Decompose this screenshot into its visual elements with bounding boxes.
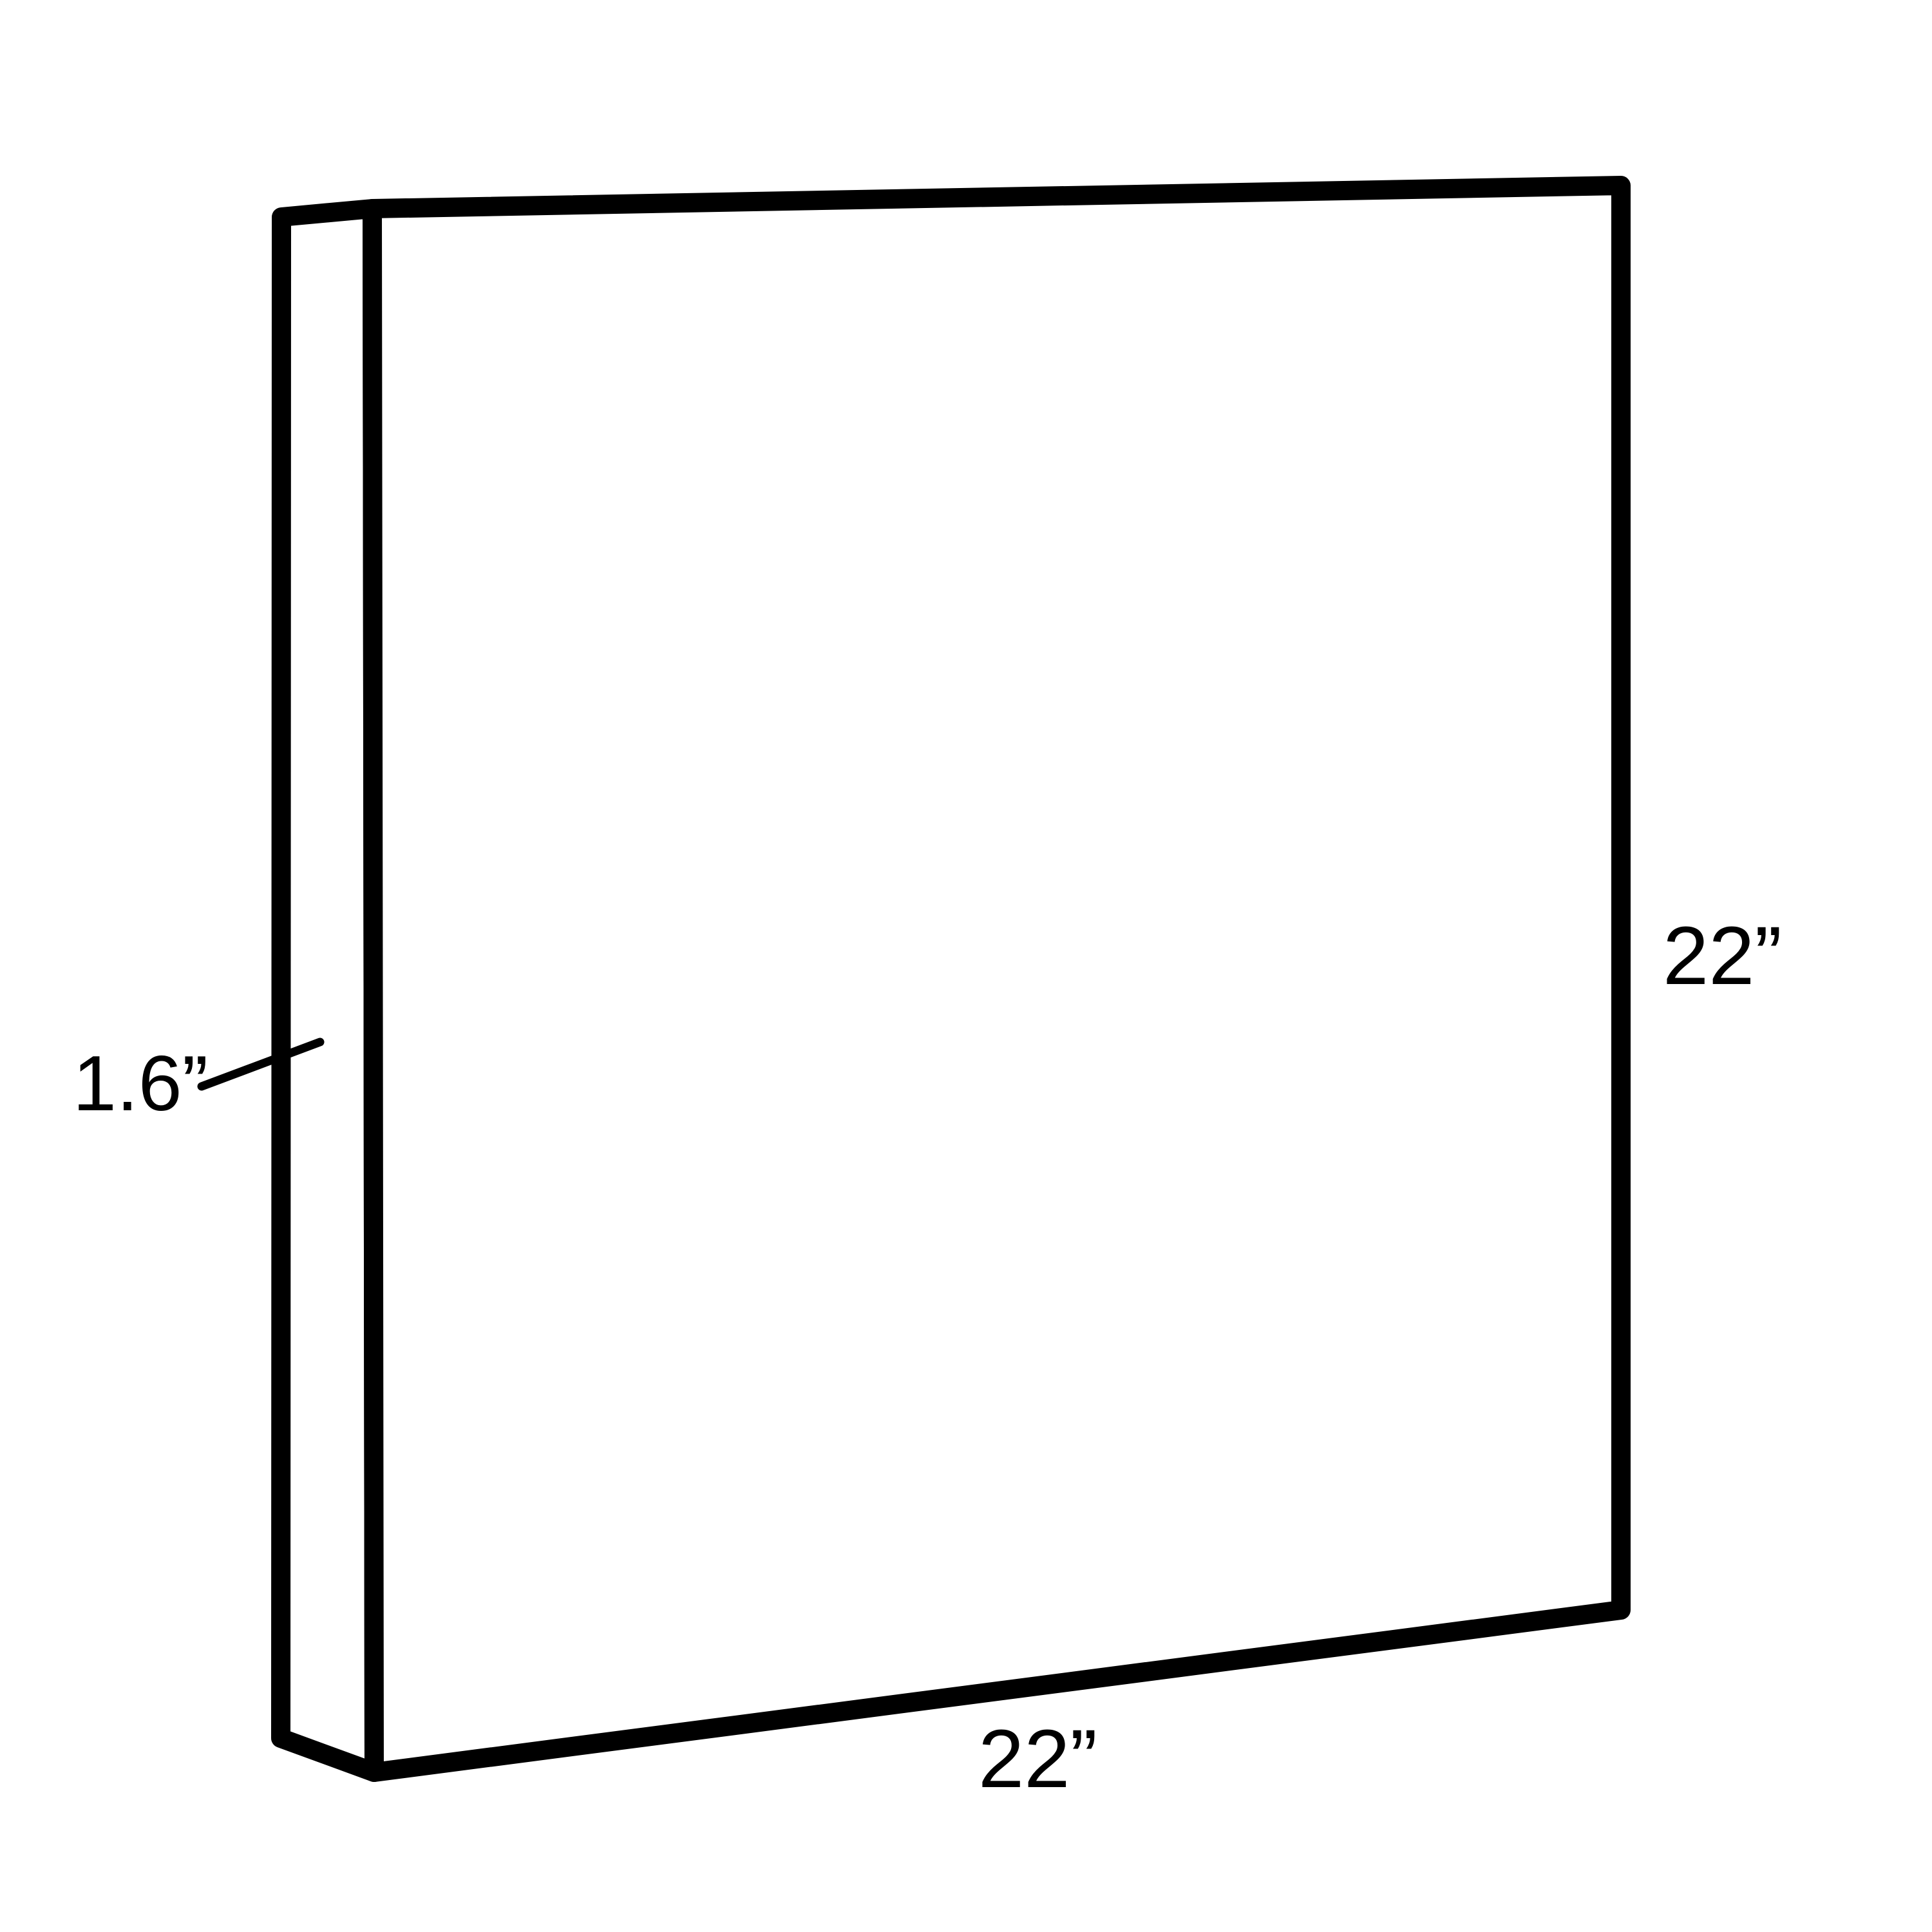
width-dimension-label: 22” (978, 1713, 1097, 1805)
panel-front-face (372, 185, 1621, 1772)
diagram-canvas: 1.6” 22” 22” (0, 0, 1932, 1932)
panel-side-face (281, 209, 374, 1772)
panel-diagram: 1.6” 22” 22” (0, 0, 1932, 1932)
depth-dimension-label: 1.6” (73, 1039, 208, 1127)
height-dimension-label: 22” (1663, 910, 1782, 1002)
